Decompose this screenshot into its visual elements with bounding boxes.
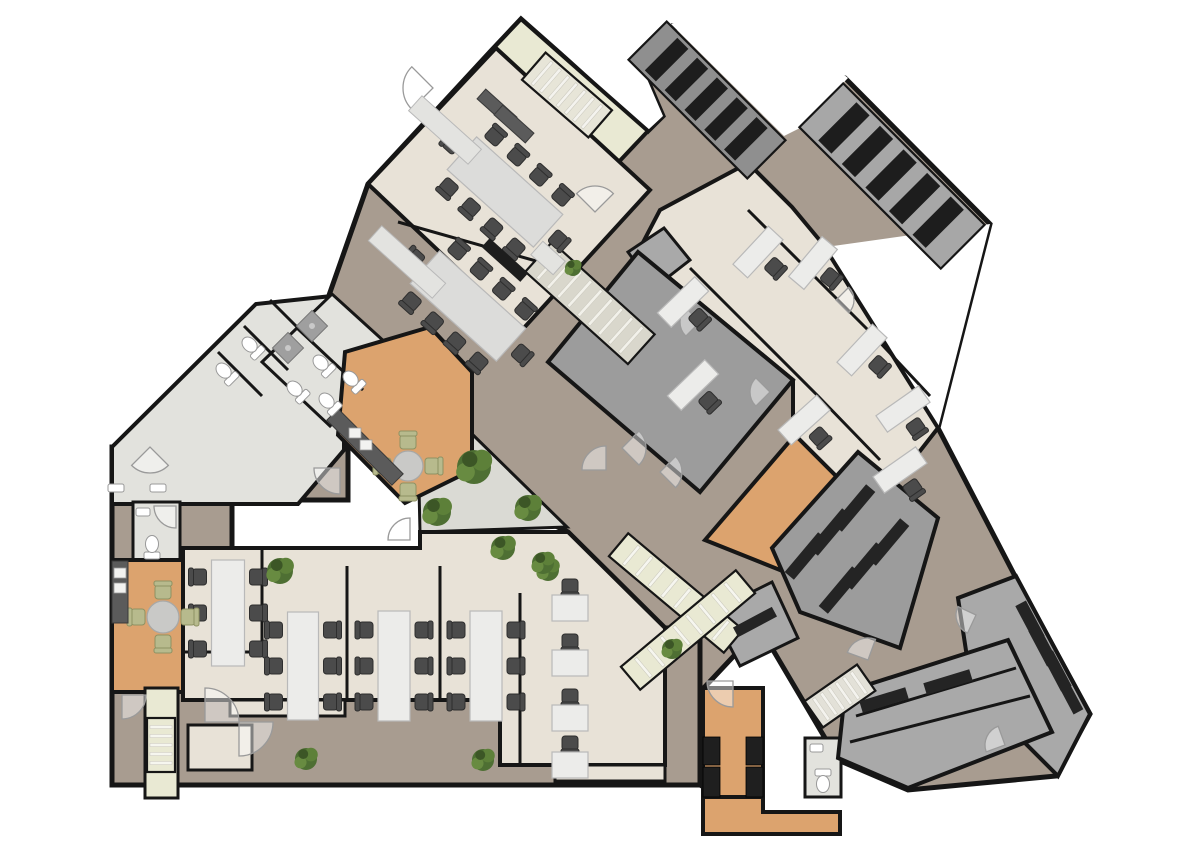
chair xyxy=(355,657,373,675)
sink xyxy=(136,508,150,516)
chair xyxy=(447,621,465,639)
chair xyxy=(324,621,342,639)
chair xyxy=(154,581,172,599)
chair xyxy=(324,657,342,675)
sink xyxy=(108,484,124,492)
chair-back xyxy=(428,693,433,711)
plant-foliage xyxy=(495,537,506,548)
appliance xyxy=(349,428,361,438)
bar-cabinet xyxy=(746,737,763,765)
chair-back xyxy=(189,640,194,658)
chair-seat xyxy=(451,694,465,710)
door-arc xyxy=(388,518,410,540)
chair xyxy=(250,640,268,658)
chair-back xyxy=(520,621,525,639)
chair-seat xyxy=(324,622,338,638)
chair-back xyxy=(337,693,342,711)
chair-seat xyxy=(131,609,145,625)
chair-back xyxy=(263,640,268,658)
chair xyxy=(250,568,268,586)
chair xyxy=(355,693,373,711)
plant-foliage xyxy=(271,559,283,571)
chair-seat xyxy=(562,634,578,648)
chair-seat xyxy=(415,658,429,674)
toilet xyxy=(144,536,160,560)
chair-seat xyxy=(451,622,465,638)
chair-back xyxy=(520,693,525,711)
chair-back xyxy=(154,581,172,586)
appliance xyxy=(114,583,126,593)
chair xyxy=(561,689,579,707)
chair-seat xyxy=(507,658,521,674)
chair xyxy=(189,568,207,586)
chair-seat xyxy=(507,694,521,710)
chair-back xyxy=(428,657,433,675)
door-arc-shape xyxy=(388,518,410,540)
plant-foliage xyxy=(427,499,440,512)
chair xyxy=(399,483,417,501)
chair xyxy=(265,657,283,675)
chair-back xyxy=(263,604,268,622)
chair-back xyxy=(447,657,452,675)
floor-plan-canvas xyxy=(0,0,1200,849)
plant-foliage xyxy=(298,749,308,759)
chair-back xyxy=(399,431,417,436)
chair-seat xyxy=(425,458,439,474)
chair xyxy=(355,621,373,639)
chair xyxy=(265,621,283,639)
room-bar-foot xyxy=(703,797,840,834)
chair-seat xyxy=(193,641,207,657)
chair-seat xyxy=(250,569,264,585)
chair xyxy=(507,621,525,639)
chair-back xyxy=(154,648,172,653)
chair-seat xyxy=(562,736,578,750)
small-desk-top xyxy=(552,595,588,621)
chair-back xyxy=(428,621,433,639)
chair-back xyxy=(355,621,360,639)
chair-seat xyxy=(400,435,416,449)
chair-seat xyxy=(359,622,373,638)
chair-seat xyxy=(415,694,429,710)
bar-cabinet xyxy=(703,767,720,797)
chair-seat xyxy=(181,609,195,625)
stairs-shaft-left-tread xyxy=(150,725,172,728)
chair xyxy=(181,608,199,626)
chair-back xyxy=(337,657,342,675)
bench-desk-3 xyxy=(355,611,433,721)
plant-foliage xyxy=(519,496,531,508)
sink xyxy=(810,744,823,752)
chair-back xyxy=(355,657,360,675)
chair xyxy=(127,608,145,626)
chair-back xyxy=(520,657,525,675)
chair xyxy=(250,604,268,622)
bar-cabinet xyxy=(703,737,720,765)
chair xyxy=(561,634,579,652)
chair xyxy=(447,657,465,675)
toilet-bowl xyxy=(146,536,159,553)
chair-seat xyxy=(415,622,429,638)
chair-seat xyxy=(400,483,416,497)
chair-seat xyxy=(324,694,338,710)
plant-foliage xyxy=(567,261,574,268)
chair xyxy=(507,657,525,675)
chair xyxy=(415,693,433,711)
chair-seat xyxy=(562,579,578,593)
chair-back xyxy=(265,693,270,711)
plant-foliage xyxy=(665,640,674,649)
chair-seat xyxy=(269,622,283,638)
bench-desk-2 xyxy=(265,612,342,720)
chair xyxy=(324,693,342,711)
chair-seat xyxy=(269,694,283,710)
appliance xyxy=(360,440,372,450)
bar-cabinet xyxy=(746,767,763,797)
chair xyxy=(447,693,465,711)
chair-back xyxy=(447,693,452,711)
chair-seat xyxy=(155,635,171,649)
chair xyxy=(265,693,283,711)
toilet-tank xyxy=(815,769,831,776)
bench-desk-2-top xyxy=(288,612,319,720)
chair-seat xyxy=(193,569,207,585)
chair-seat xyxy=(250,641,264,657)
stairs-shaft-left-tread xyxy=(150,752,172,755)
chair-back xyxy=(355,693,360,711)
chair xyxy=(415,621,433,639)
chair-back xyxy=(447,621,452,639)
chair-seat xyxy=(451,658,465,674)
chair xyxy=(154,635,172,653)
chair-back xyxy=(438,457,443,475)
chair-back xyxy=(399,496,417,501)
sink xyxy=(150,484,166,492)
small-desk-top xyxy=(552,650,588,676)
toilet-bowl xyxy=(817,776,830,793)
kitchen-table-left-top xyxy=(147,601,179,633)
chair-back xyxy=(337,621,342,639)
chair-seat xyxy=(250,605,264,621)
bench-desk-1 xyxy=(189,560,268,666)
chair-seat xyxy=(155,585,171,599)
chair-seat xyxy=(324,658,338,674)
chair-back xyxy=(265,657,270,675)
stairs-shaft-left xyxy=(147,718,175,772)
toilet-tank xyxy=(144,552,160,559)
bench-desk-1-top xyxy=(212,560,245,666)
chair xyxy=(189,640,207,658)
chair xyxy=(425,457,443,475)
chair-seat xyxy=(507,622,521,638)
stairs-shaft-left-tread xyxy=(150,743,172,746)
chair xyxy=(561,736,579,754)
small-desk-top xyxy=(552,752,588,778)
chair-seat xyxy=(562,689,578,703)
chair xyxy=(507,693,525,711)
chair xyxy=(415,657,433,675)
appliance xyxy=(114,568,126,578)
stairs-shaft-left-tread xyxy=(150,761,172,764)
chair-seat xyxy=(359,658,373,674)
toilet xyxy=(815,769,831,793)
bench-desk-3-top xyxy=(378,611,410,721)
small-desk-top xyxy=(552,705,588,731)
chair-seat xyxy=(359,694,373,710)
chair xyxy=(399,431,417,449)
chair-back xyxy=(194,608,199,626)
stairs-shaft-left-tread xyxy=(150,734,172,737)
bench-desk-4-top xyxy=(470,611,502,721)
plant-foliage xyxy=(475,750,485,760)
bench-desk-4 xyxy=(447,611,525,721)
chair-back xyxy=(265,621,270,639)
plant-foliage xyxy=(462,452,477,467)
floor-plan xyxy=(0,0,1200,849)
chair-seat xyxy=(269,658,283,674)
chair xyxy=(561,579,579,597)
chair-back xyxy=(189,568,194,586)
plant-foliage xyxy=(535,553,545,563)
